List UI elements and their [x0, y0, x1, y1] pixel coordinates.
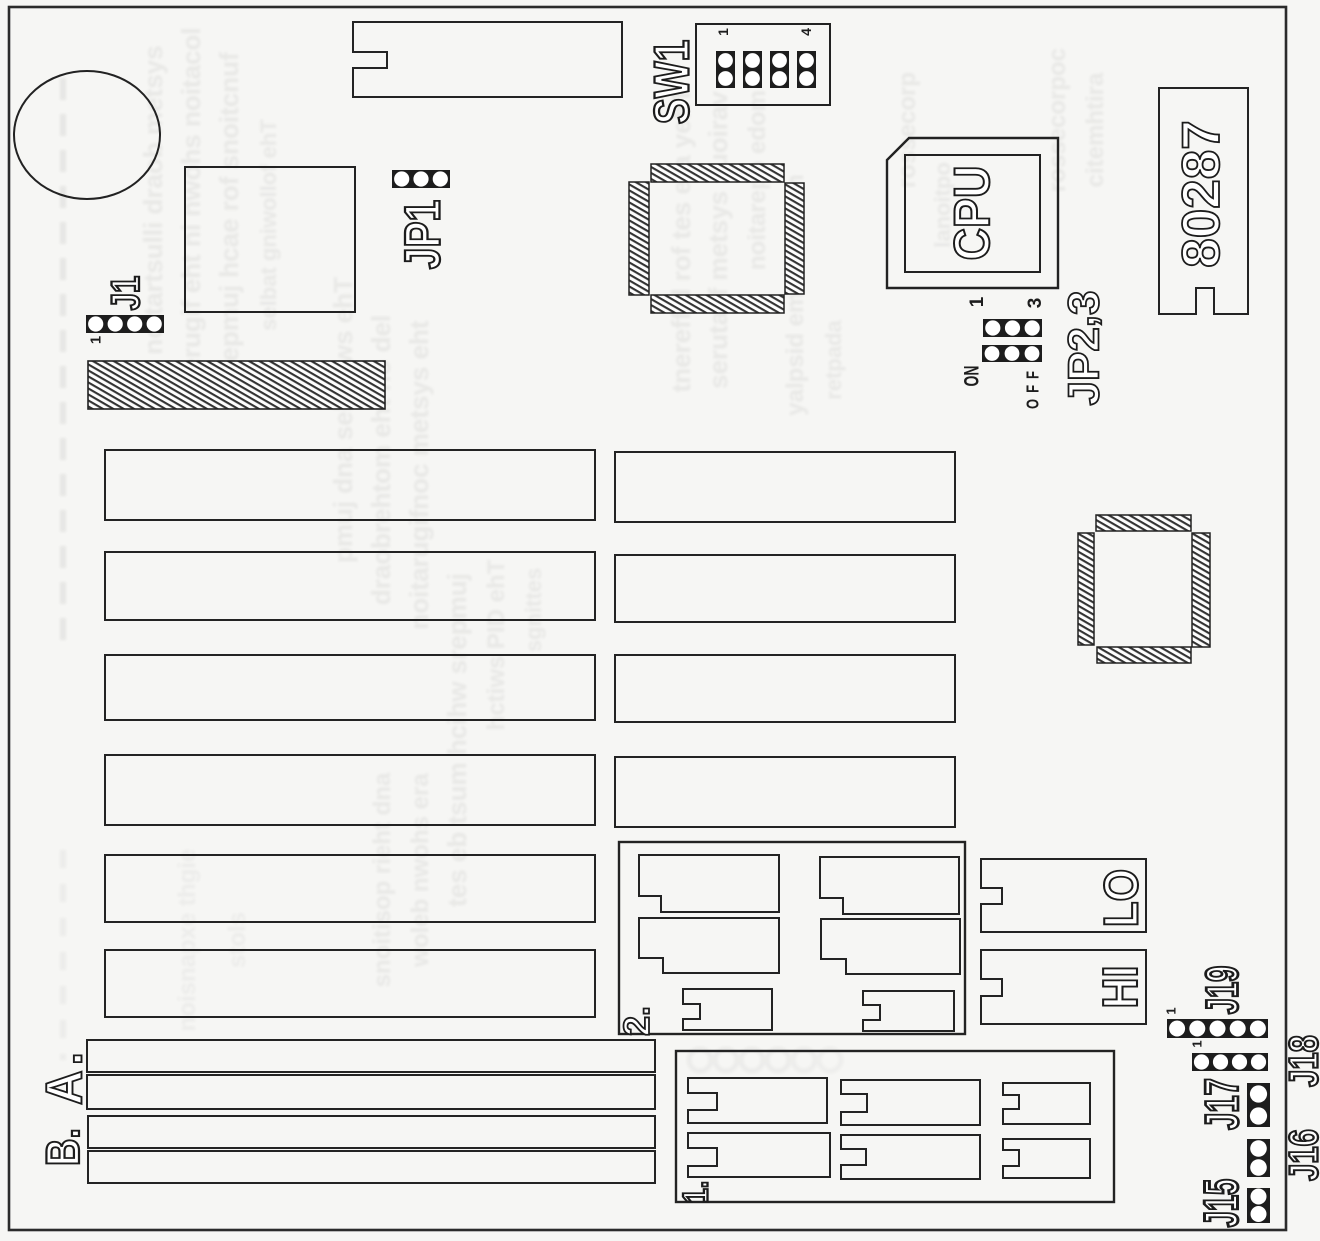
svg-text:erugif eht ni nwohs noitacol: erugif eht ni nwohs noitacol	[176, 27, 206, 372]
svg-text:ON: ON	[960, 366, 984, 387]
svg-text:80287: 80287	[1172, 120, 1231, 267]
svg-text:HI: HI	[1092, 965, 1147, 1008]
svg-text:noisnapxe thgie: noisnapxe thgie	[174, 849, 201, 1032]
svg-text:1: 1	[715, 28, 731, 36]
svg-text:CPU: CPU	[945, 166, 1001, 261]
svg-text:OFF: OFF	[1024, 365, 1043, 409]
svg-text:J19: J19	[1197, 966, 1248, 1014]
svg-text:snoitisop rieht dna: snoitisop rieht dna	[369, 772, 396, 987]
svg-text:J16: J16	[1281, 1129, 1320, 1181]
svg-text:J17: J17	[1197, 1078, 1249, 1130]
svg-text:draobrehtom eht no del: draobrehtom eht no del	[366, 315, 396, 605]
svg-text:stols: stols	[224, 912, 251, 968]
svg-text:1: 1	[87, 336, 104, 344]
svg-text:woleb nwohs era: woleb nwohs era	[407, 773, 434, 968]
svg-text:4: 4	[798, 28, 814, 36]
svg-text:3: 3	[1025, 298, 1046, 309]
svg-text:A.: A.	[35, 1047, 93, 1105]
svg-text:1: 1	[1190, 1040, 1205, 1047]
svg-text:SW1: SW1	[645, 40, 699, 125]
svg-text:1: 1	[1164, 1007, 1179, 1014]
svg-text:noitarugifnoc metsys eht: noitarugifnoc metsys eht	[404, 320, 434, 629]
svg-text:J15: J15	[1195, 1179, 1248, 1227]
svg-text:J18: J18	[1281, 1035, 1320, 1087]
svg-text:sgnittes: sgnittes	[521, 568, 546, 652]
svg-text:1: 1	[967, 296, 988, 307]
svg-text:JP1: JP1	[395, 200, 451, 269]
svg-text:selbat gniwollof ehT: selbat gniwollof ehT	[256, 119, 281, 331]
svg-text:rossecorp: rossecorp	[894, 72, 921, 188]
svg-text:2.: 2.	[616, 1006, 657, 1036]
svg-text:B.: B.	[37, 1128, 90, 1166]
svg-text:serutaef metsys suoirav: serutaef metsys suoirav	[703, 91, 733, 389]
svg-text:repmuj hcae rof snoitcnuf: repmuj hcae rof snoitcnuf	[214, 52, 244, 372]
svg-text:JP2,3: JP2,3	[1057, 291, 1108, 406]
svg-text:tnereffid rof tes era yehT: tnereffid rof tes era yehT	[666, 87, 696, 392]
svg-text:retpada: retpada	[821, 320, 846, 400]
svg-text:J1: J1	[102, 276, 148, 310]
svg-text:1.: 1.	[676, 1181, 715, 1204]
svg-text:citemhtira: citemhtira	[1082, 72, 1109, 187]
svg-text:tes eb tsum hcihw srepmuj: tes eb tsum hcihw srepmuj	[442, 573, 472, 907]
svg-text:LO: LO	[1094, 869, 1148, 927]
svg-text:hctiws PID ehT: hctiws PID ehT	[483, 559, 510, 730]
